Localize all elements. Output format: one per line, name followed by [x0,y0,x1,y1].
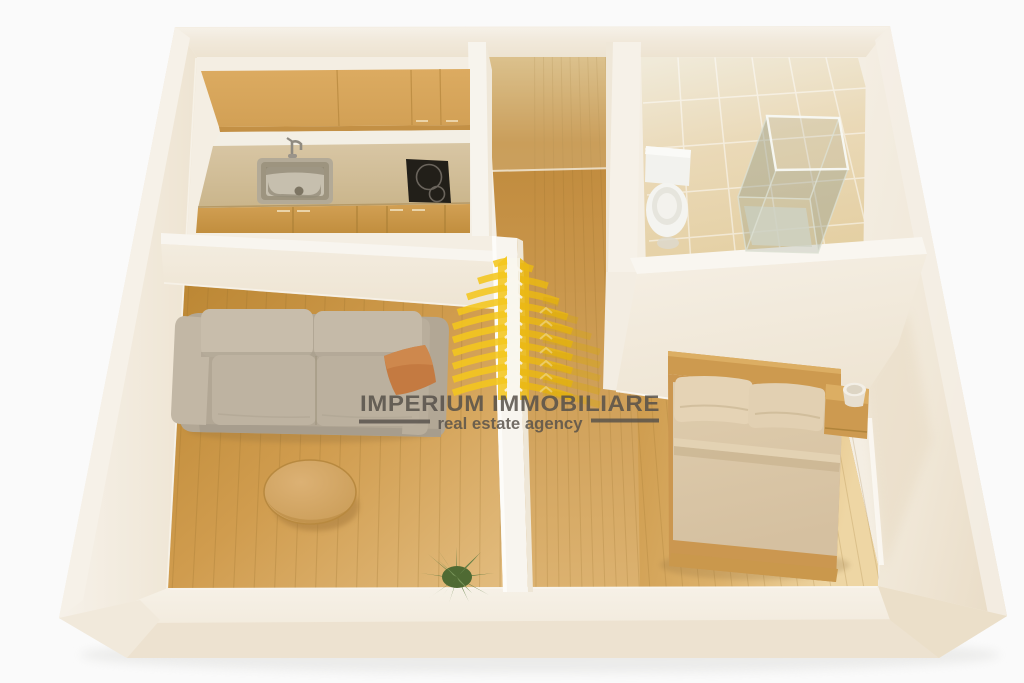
svg-text:real estate agency: real estate agency [438,414,584,433]
svg-text:IMPERIUM IMMOBILIARE: IMPERIUM IMMOBILIARE [360,391,660,416]
